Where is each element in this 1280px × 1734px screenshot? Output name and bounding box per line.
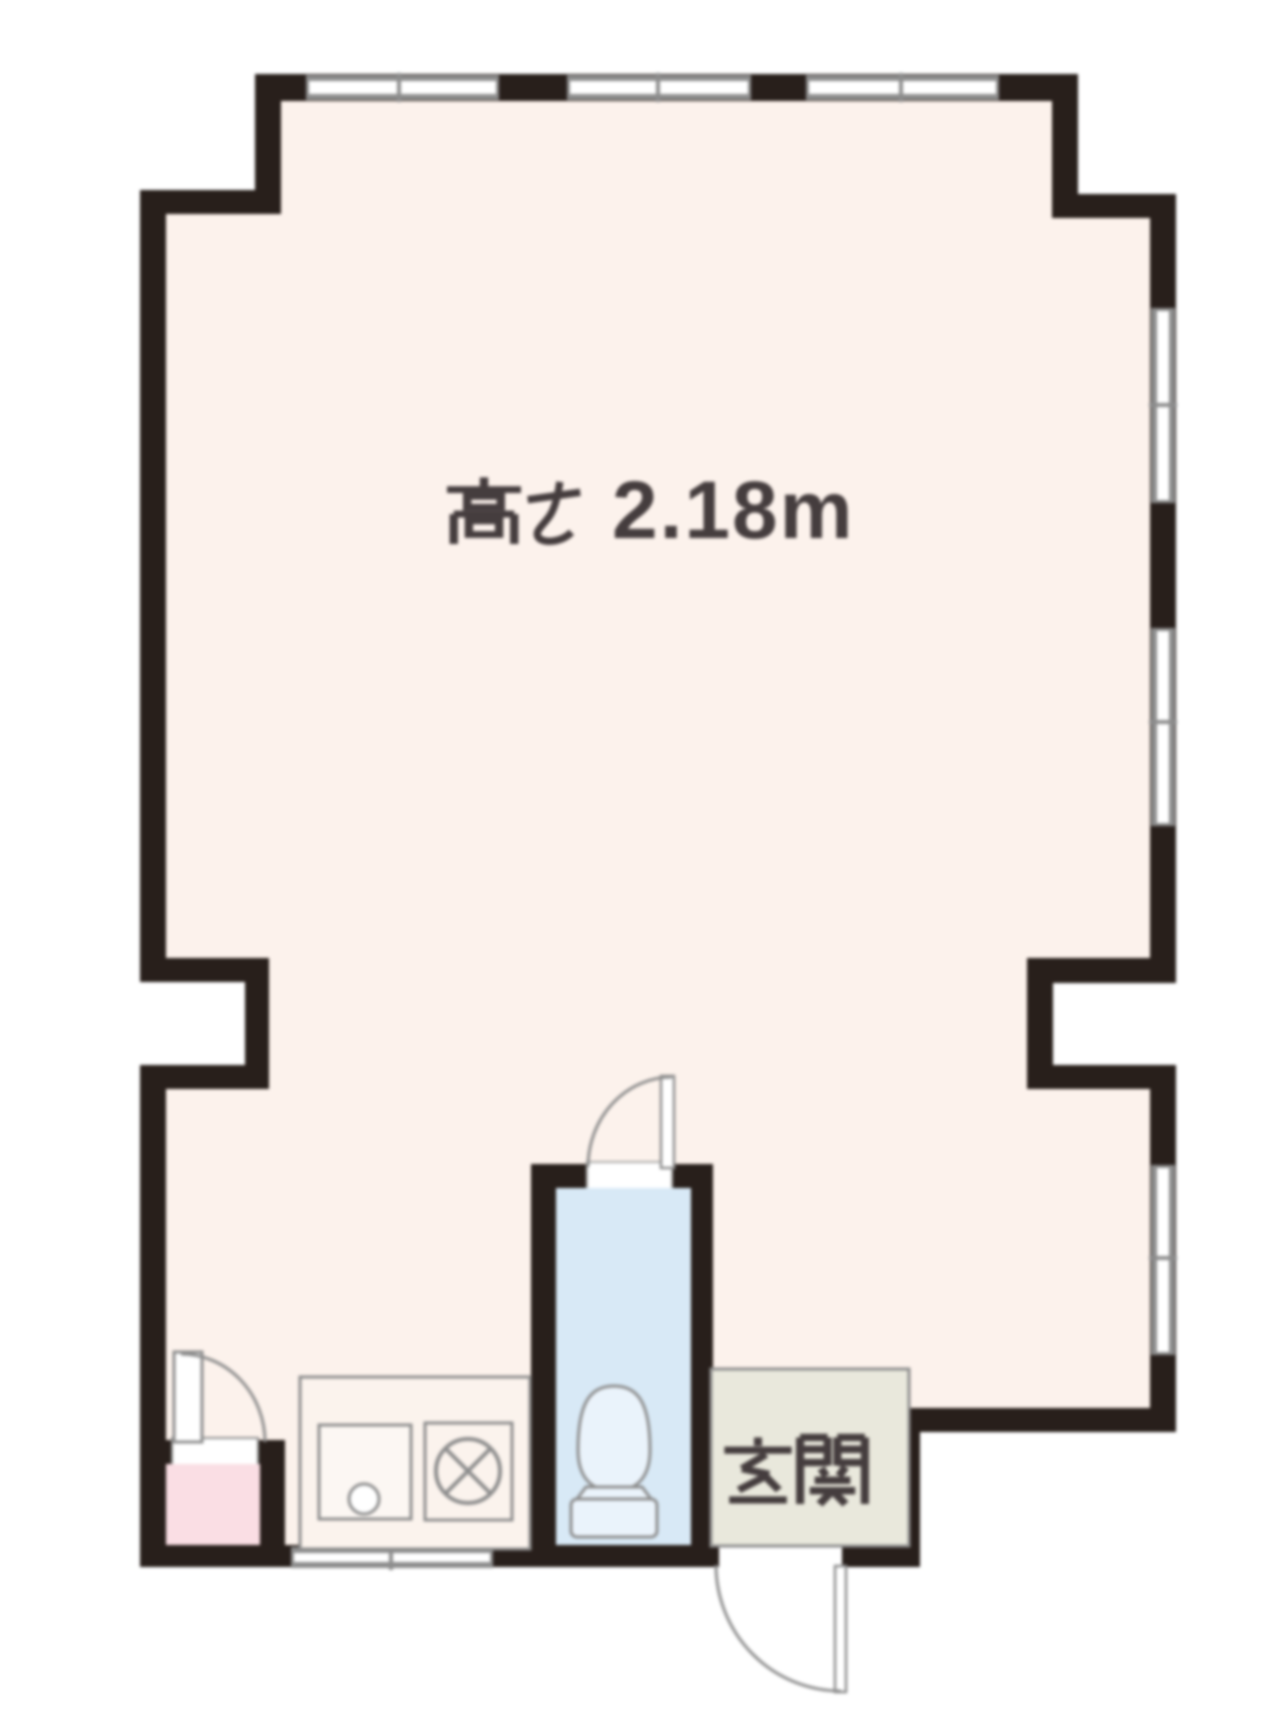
svg-text:2.18m: 2.18m — [612, 465, 855, 556]
